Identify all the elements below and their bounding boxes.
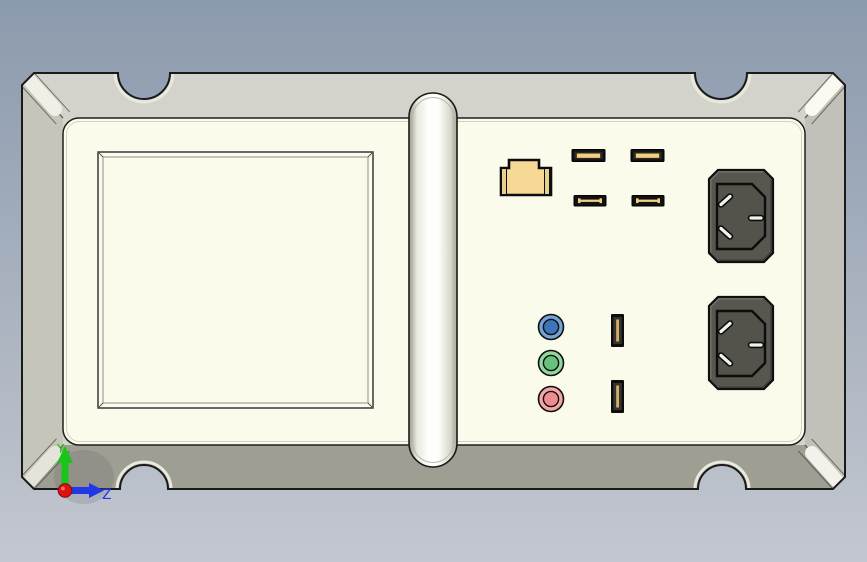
display-outer-frame [98, 152, 373, 408]
usb-port-3-tab-left [578, 198, 581, 203]
usb-port-4-tab-left [636, 198, 639, 203]
usb-port-4 [632, 196, 664, 207]
audio-jack-line-in-center [543, 319, 558, 334]
power-inlet-2 [709, 297, 773, 389]
audio-jack-microphone [539, 387, 564, 412]
usb-port-3-tab-right [600, 198, 603, 203]
cad-viewport[interactable]: Y Z [0, 0, 867, 562]
usb-port-4-tab-right [658, 198, 661, 203]
handle-body [409, 93, 457, 467]
audio-jack-microphone-center [543, 391, 558, 406]
usb-port-4-tongue [638, 200, 658, 202]
usb-port-1-tongue [577, 153, 601, 158]
handle [409, 93, 457, 467]
power-inlet-1 [709, 170, 773, 262]
audio-jack-line-in [539, 315, 564, 340]
audio-jack-line-out-center [543, 355, 558, 370]
audio-jack-line-out [539, 351, 564, 376]
cad-stage: Y Z [0, 0, 867, 562]
panel-left-face [22, 73, 63, 489]
axis-origin-dot [58, 484, 72, 498]
usb-vertical-port-2-tongue [616, 386, 619, 408]
ethernet-left-ear [502, 169, 507, 195]
usb-vertical-port-1 [611, 314, 624, 347]
panel-right-face [805, 73, 845, 489]
usb-port-2 [631, 150, 664, 162]
usb-port-3-tongue [580, 200, 600, 202]
display-recess [98, 152, 373, 408]
device-panel [15, 67, 851, 495]
ethernet-right-ear [545, 169, 550, 195]
axis-origin-highlight [61, 487, 65, 491]
axis-z-label: Z [102, 487, 112, 503]
usb-port-2-tongue [636, 153, 660, 158]
audio-jacks [539, 315, 564, 412]
usb-vertical-port-2 [611, 380, 624, 413]
usb-port-3 [574, 196, 606, 207]
usb-port-1 [572, 150, 605, 162]
usb-vertical-port-1-tongue [616, 320, 619, 342]
axis-y-label: Y [56, 442, 65, 456]
